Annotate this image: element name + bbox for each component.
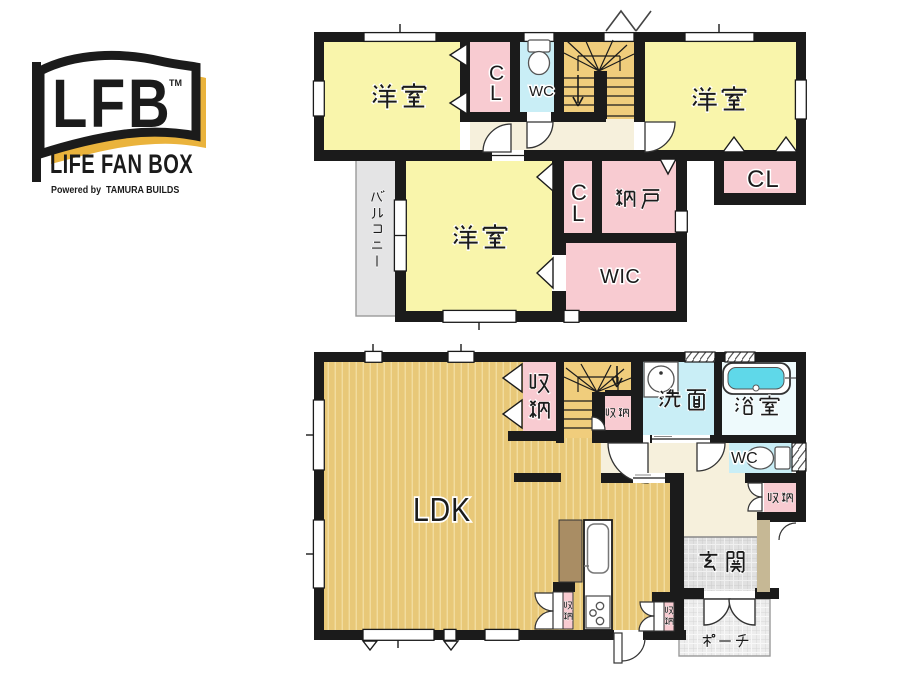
svg-text:TM: TM bbox=[169, 78, 182, 88]
svg-text:WC: WC bbox=[731, 450, 758, 467]
svg-text:L: L bbox=[490, 82, 502, 105]
svg-text:CL: CL bbox=[747, 166, 780, 193]
svg-text:LFB: LFB bbox=[52, 64, 172, 142]
svg-text:WC: WC bbox=[529, 83, 554, 100]
svg-text:LDK: LDK bbox=[413, 491, 471, 529]
svg-text:L: L bbox=[572, 201, 584, 226]
svg-text:Powered by TAMURA BUILDS: Powered by TAMURA BUILDS bbox=[51, 184, 180, 196]
svg-text:LIFE FAN BOX: LIFE FAN BOX bbox=[50, 149, 193, 180]
svg-text:WIC: WIC bbox=[600, 266, 640, 288]
